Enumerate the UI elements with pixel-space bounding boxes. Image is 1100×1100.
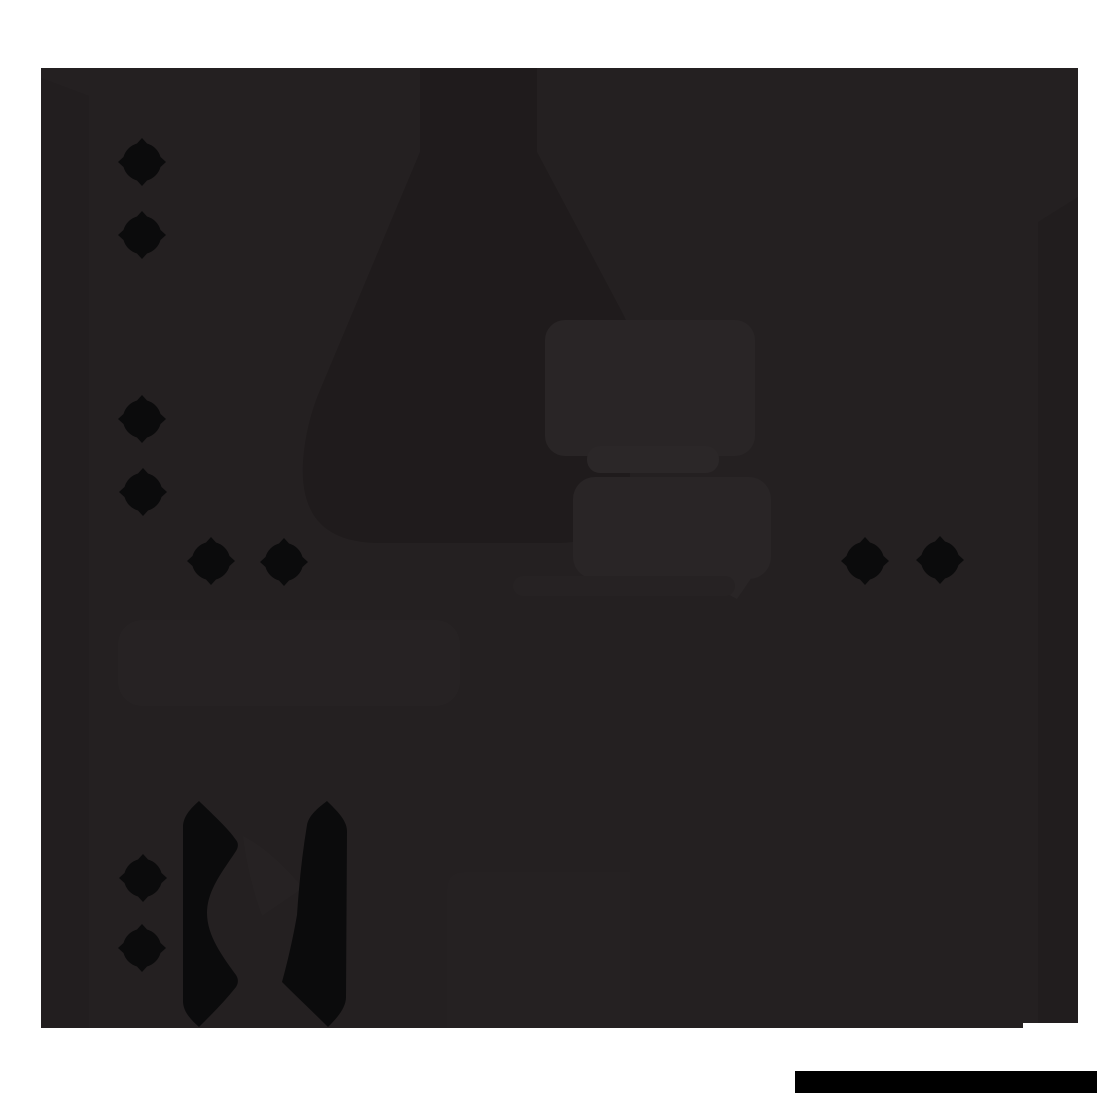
caption-band-soft [513, 576, 735, 596]
caption-band-bright [587, 446, 719, 473]
panel-bottom-step [1023, 1023, 1080, 1029]
caption-box-lower-left [118, 620, 460, 706]
page [0, 0, 1100, 1100]
right-shade-column [1038, 197, 1078, 1023]
artwork-svg [0, 0, 1100, 1100]
redaction-bar [795, 1071, 1097, 1093]
caption-box-second [573, 477, 771, 579]
caption-box-main [545, 320, 755, 456]
left-shade-band [41, 78, 89, 1028]
bottom-middle-panel [447, 872, 630, 1028]
